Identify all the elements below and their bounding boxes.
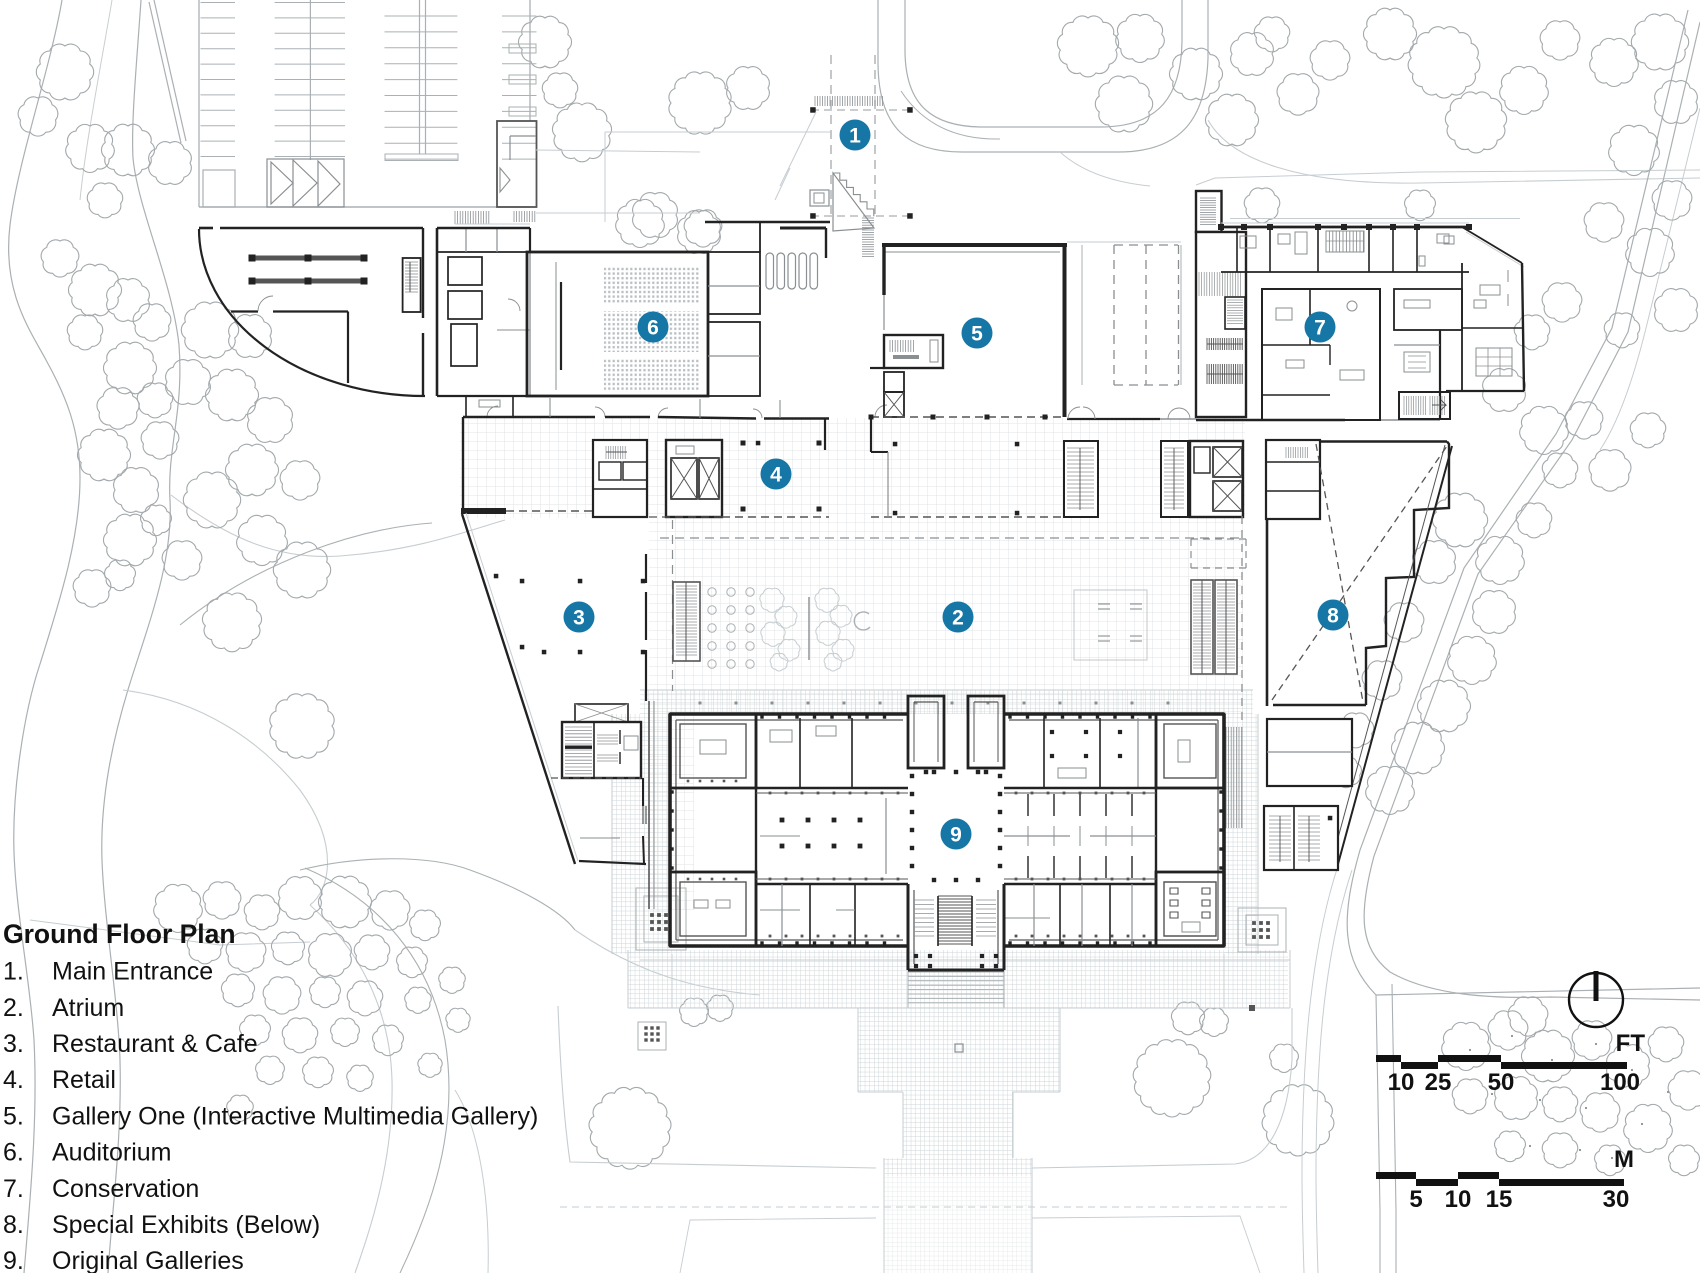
svg-text:5.: 5.: [3, 1102, 24, 1130]
svg-text:Conservation: Conservation: [52, 1175, 199, 1203]
svg-text:M: M: [1614, 1146, 1634, 1173]
svg-text:7: 7: [1314, 317, 1326, 340]
svg-text:30: 30: [1603, 1186, 1630, 1213]
svg-text:Special Exhibits (Below): Special Exhibits (Below): [52, 1211, 320, 1239]
svg-text:4: 4: [770, 464, 782, 487]
svg-text:8: 8: [1327, 605, 1339, 628]
svg-text:10: 10: [1388, 1069, 1415, 1096]
svg-text:Retail: Retail: [52, 1066, 116, 1094]
svg-text:5: 5: [1409, 1186, 1422, 1213]
svg-text:9: 9: [950, 824, 962, 847]
svg-text:7.: 7.: [3, 1175, 24, 1203]
svg-text:3: 3: [573, 607, 585, 630]
svg-text:Original Galleries: Original Galleries: [52, 1247, 244, 1273]
svg-text:25: 25: [1425, 1069, 1452, 1096]
svg-text:1: 1: [849, 125, 861, 148]
svg-text:8.: 8.: [3, 1211, 24, 1239]
svg-text:2: 2: [952, 607, 964, 630]
svg-text:100: 100: [1600, 1069, 1640, 1096]
svg-text:FT: FT: [1616, 1030, 1646, 1057]
svg-text:1.: 1.: [3, 958, 24, 986]
svg-text:3.: 3.: [3, 1030, 24, 1058]
svg-text:Atrium: Atrium: [52, 994, 124, 1022]
svg-text:2.: 2.: [3, 994, 24, 1022]
svg-text:15: 15: [1486, 1186, 1513, 1213]
svg-text:50: 50: [1488, 1069, 1515, 1096]
svg-text:Auditorium: Auditorium: [52, 1139, 172, 1167]
svg-text:10: 10: [1445, 1186, 1472, 1213]
svg-text:Ground Floor Plan: Ground Floor Plan: [3, 919, 236, 949]
svg-text:6: 6: [647, 317, 659, 340]
svg-text:9.: 9.: [3, 1247, 24, 1273]
svg-text:6.: 6.: [3, 1139, 24, 1167]
svg-text:4.: 4.: [3, 1066, 24, 1094]
svg-text:Restaurant & Cafe: Restaurant & Cafe: [52, 1030, 258, 1058]
svg-text:5: 5: [971, 323, 983, 346]
svg-text:Main Entrance: Main Entrance: [52, 958, 213, 986]
svg-text:Gallery One (Interactive Multi: Gallery One (Interactive Multimedia Gall…: [52, 1102, 538, 1130]
